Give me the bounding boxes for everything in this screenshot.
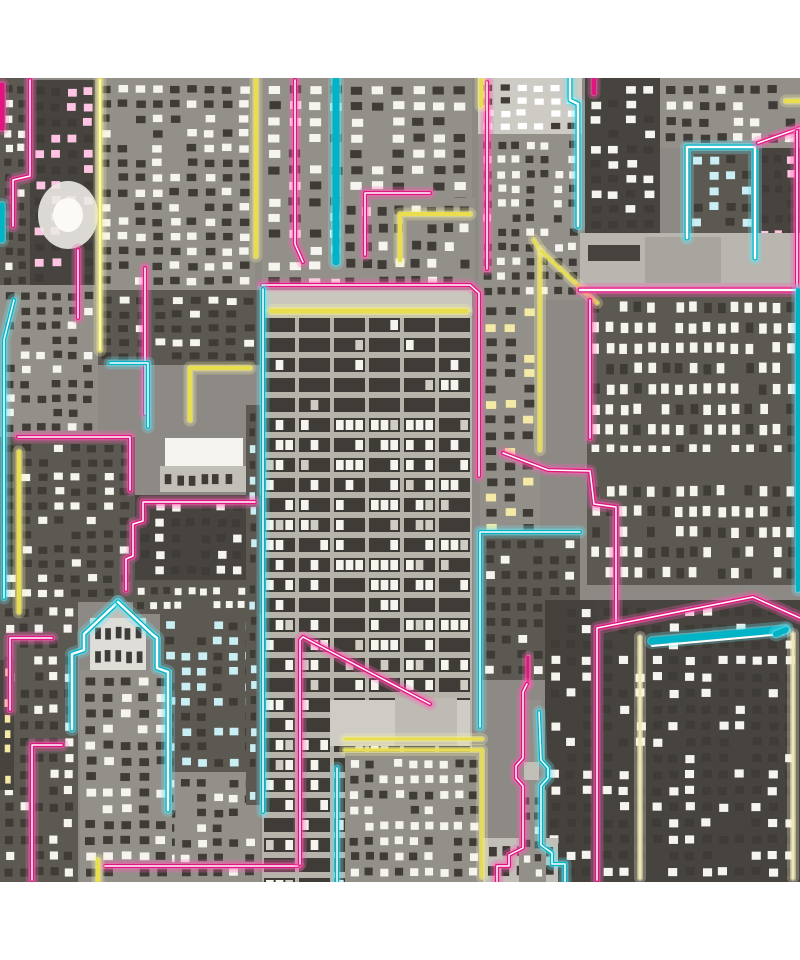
searchlight-glow-core <box>53 198 83 232</box>
city-skyline-scene <box>0 78 800 882</box>
ac-units <box>588 245 640 261</box>
tall-left-slab <box>95 78 255 290</box>
penthouse <box>645 237 721 283</box>
right-big-gap-band <box>587 452 800 482</box>
classical-lit-roof <box>165 438 243 468</box>
neon-line-cyan-41 <box>776 630 786 634</box>
city-wallpaper-photo <box>0 78 800 882</box>
yellow-box-building <box>345 752 483 882</box>
